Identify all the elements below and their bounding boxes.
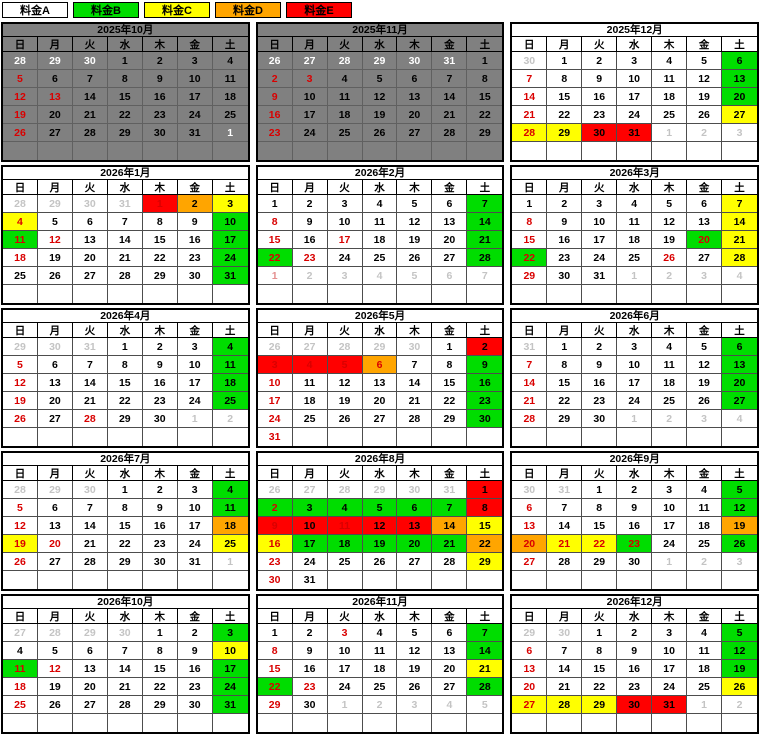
- day-cell: 31: [73, 338, 108, 356]
- day-cell: 6: [432, 624, 467, 642]
- day-cell: 27: [397, 553, 432, 571]
- day-cell: 1: [582, 624, 617, 642]
- day-cell: 17: [328, 660, 363, 678]
- day-cell: 24: [293, 124, 328, 142]
- weekday-header: 火: [328, 180, 363, 195]
- weekday-header-row: 日月火水木金土: [512, 609, 757, 624]
- day-cell: 26: [258, 52, 293, 70]
- weekday-header: 土: [213, 323, 248, 338]
- weekday-header: 木: [397, 323, 432, 338]
- day-cell: 1: [143, 624, 178, 642]
- day-cell: 24: [652, 678, 687, 696]
- day-cell: 2: [363, 696, 398, 714]
- day-cell: 23: [143, 535, 178, 553]
- weekday-header: 土: [213, 466, 248, 481]
- week-row: [258, 142, 503, 160]
- day-cell: [547, 285, 582, 303]
- week-row: [3, 571, 248, 589]
- day-cell: 31: [213, 696, 248, 714]
- day-cell: 15: [432, 374, 467, 392]
- day-cell: 3: [652, 624, 687, 642]
- day-cell: 29: [143, 696, 178, 714]
- weekday-header-row: 日月火水木金土: [258, 180, 503, 195]
- day-cell: [722, 571, 757, 589]
- day-cell: 2: [687, 124, 722, 142]
- day-cell: 15: [258, 231, 293, 249]
- day-cell: 2: [687, 553, 722, 571]
- day-cell: 7: [73, 70, 108, 88]
- day-cell: 27: [73, 267, 108, 285]
- day-cell: 30: [143, 410, 178, 428]
- weekday-header: 月: [293, 323, 328, 338]
- day-cell: 4: [722, 267, 757, 285]
- day-cell: [108, 142, 143, 160]
- day-cell: 5: [363, 499, 398, 517]
- day-cell: 12: [38, 231, 73, 249]
- day-cell: [582, 714, 617, 732]
- day-cell: [432, 714, 467, 732]
- day-cell: 21: [73, 535, 108, 553]
- week-row: 24252627282930: [258, 410, 503, 428]
- day-cell: 23: [617, 535, 652, 553]
- day-cell: [38, 714, 73, 732]
- weekday-header: 金: [178, 609, 213, 624]
- day-cell: 28: [73, 553, 108, 571]
- day-cell: 21: [467, 231, 502, 249]
- day-cell: 22: [108, 535, 143, 553]
- day-cell: [328, 571, 363, 589]
- day-cell: 16: [467, 374, 502, 392]
- day-cell: 5: [722, 624, 757, 642]
- day-cell: 30: [582, 410, 617, 428]
- day-cell: [213, 714, 248, 732]
- day-cell: [617, 285, 652, 303]
- weekday-header-row: 日月火水木金土: [3, 609, 248, 624]
- day-cell: 16: [143, 374, 178, 392]
- day-cell: 31: [178, 124, 213, 142]
- day-cell: 16: [617, 660, 652, 678]
- day-cell: 3: [293, 70, 328, 88]
- day-cell: 18: [213, 374, 248, 392]
- day-cell: [108, 714, 143, 732]
- day-cell: 12: [363, 88, 398, 106]
- week-row: 16171819202122: [258, 535, 503, 553]
- day-cell: 1: [178, 410, 213, 428]
- day-cell: 20: [73, 249, 108, 267]
- week-row: [512, 142, 757, 160]
- day-cell: 26: [652, 249, 687, 267]
- day-cell: 26: [397, 678, 432, 696]
- day-cell: 27: [397, 124, 432, 142]
- day-cell: 22: [108, 392, 143, 410]
- weekday-header: 土: [722, 180, 757, 195]
- month-block-2026年6月: 2026年6月日月火水木金土31123456789101112131415161…: [510, 308, 759, 448]
- day-cell: 31: [582, 267, 617, 285]
- month-block-2025年11月: 2025年11月日月火水木金土2627282930311234567891011…: [256, 22, 505, 162]
- day-cell: 14: [467, 213, 502, 231]
- day-cell: 9: [178, 642, 213, 660]
- day-cell: 15: [582, 660, 617, 678]
- weekday-header: 水: [108, 323, 143, 338]
- day-cell: 29: [363, 52, 398, 70]
- day-cell: 6: [38, 70, 73, 88]
- week-row: 15161718192021: [512, 231, 757, 249]
- weekday-header: 火: [73, 323, 108, 338]
- weekday-header-row: 日月火水木金土: [3, 180, 248, 195]
- day-cell: 24: [178, 106, 213, 124]
- weekday-header: 水: [363, 180, 398, 195]
- day-cell: [108, 285, 143, 303]
- day-cell: 9: [582, 70, 617, 88]
- day-cell: 29: [108, 410, 143, 428]
- day-cell: 22: [108, 106, 143, 124]
- day-cell: [512, 142, 547, 160]
- week-row: 13141516171819: [512, 660, 757, 678]
- weekday-header: 月: [38, 180, 73, 195]
- day-cell: 14: [73, 374, 108, 392]
- day-cell: 19: [397, 231, 432, 249]
- day-cell: 27: [722, 392, 757, 410]
- day-cell: 18: [652, 88, 687, 106]
- day-cell: 30: [143, 124, 178, 142]
- day-cell: 6: [722, 52, 757, 70]
- day-cell: 2: [293, 195, 328, 213]
- day-cell: 24: [178, 535, 213, 553]
- day-cell: 13: [363, 374, 398, 392]
- day-cell: 14: [547, 517, 582, 535]
- day-cell: 10: [293, 88, 328, 106]
- day-cell: [143, 428, 178, 446]
- day-cell: 17: [178, 374, 213, 392]
- day-cell: 10: [617, 356, 652, 374]
- day-cell: 10: [178, 499, 213, 517]
- day-cell: 29: [512, 267, 547, 285]
- day-cell: [178, 142, 213, 160]
- day-cell: [258, 142, 293, 160]
- weekday-header: 水: [108, 180, 143, 195]
- day-cell: 4: [213, 52, 248, 70]
- day-cell: 4: [652, 52, 687, 70]
- weekday-header: 火: [582, 466, 617, 481]
- month-title: 2026年1月: [3, 167, 248, 180]
- day-cell: 9: [178, 213, 213, 231]
- day-cell: 26: [397, 249, 432, 267]
- weekday-header: 水: [363, 466, 398, 481]
- day-cell: 2: [293, 267, 328, 285]
- day-cell: [73, 714, 108, 732]
- day-cell: 3: [582, 195, 617, 213]
- day-cell: 3: [397, 696, 432, 714]
- weekday-header: 日: [258, 466, 293, 481]
- week-row: 9101112131415: [258, 88, 503, 106]
- day-cell: 11: [328, 88, 363, 106]
- day-cell: 22: [143, 249, 178, 267]
- day-cell: 20: [397, 106, 432, 124]
- day-cell: 19: [363, 106, 398, 124]
- day-cell: 17: [617, 88, 652, 106]
- day-cell: 6: [38, 499, 73, 517]
- week-row: 22232425262728: [258, 249, 503, 267]
- day-cell: 19: [3, 535, 38, 553]
- day-cell: 21: [108, 249, 143, 267]
- weekday-header: 土: [213, 609, 248, 624]
- day-cell: 18: [3, 249, 38, 267]
- week-row: 2345678: [258, 70, 503, 88]
- week-row: 2829301234: [3, 481, 248, 499]
- weekday-header: 土: [722, 323, 757, 338]
- day-cell: 9: [293, 642, 328, 660]
- day-cell: 30: [73, 195, 108, 213]
- day-cell: 24: [328, 678, 363, 696]
- day-cell: 23: [258, 553, 293, 571]
- day-cell: 21: [722, 231, 757, 249]
- week-row: 21222324252627: [512, 106, 757, 124]
- day-cell: 23: [258, 124, 293, 142]
- day-cell: 14: [108, 231, 143, 249]
- day-cell: 28: [38, 624, 73, 642]
- day-cell: 30: [293, 696, 328, 714]
- week-row: [512, 714, 757, 732]
- day-cell: 11: [213, 499, 248, 517]
- month-block-2025年12月: 2025年12月日月火水木金土3012345678910111213141516…: [510, 22, 759, 162]
- day-cell: 13: [73, 231, 108, 249]
- day-cell: 20: [687, 231, 722, 249]
- month-title: 2026年9月: [512, 453, 757, 466]
- day-cell: 28: [397, 410, 432, 428]
- day-cell: 6: [38, 356, 73, 374]
- day-cell: 24: [617, 392, 652, 410]
- week-row: 27282930123: [3, 624, 248, 642]
- weekday-header-row: 日月火水木金土: [512, 466, 757, 481]
- weekday-header: 木: [652, 466, 687, 481]
- day-cell: 31: [293, 571, 328, 589]
- day-cell: [652, 142, 687, 160]
- week-row: [512, 428, 757, 446]
- week-row: 567891011: [3, 70, 248, 88]
- week-row: 11121314151617: [3, 660, 248, 678]
- day-cell: 19: [397, 660, 432, 678]
- day-cell: 1: [258, 195, 293, 213]
- day-cell: 25: [363, 249, 398, 267]
- day-cell: 5: [687, 52, 722, 70]
- day-cell: 4: [722, 410, 757, 428]
- day-cell: 6: [687, 195, 722, 213]
- day-cell: 16: [178, 660, 213, 678]
- day-cell: 24: [293, 553, 328, 571]
- day-cell: 21: [108, 678, 143, 696]
- day-cell: 23: [582, 106, 617, 124]
- day-cell: 27: [73, 696, 108, 714]
- day-cell: 26: [363, 553, 398, 571]
- day-cell: 23: [143, 106, 178, 124]
- day-cell: 30: [617, 696, 652, 714]
- legend-item-tier-A: 料金A: [2, 2, 68, 18]
- day-cell: 5: [3, 70, 38, 88]
- weekday-header: 金: [687, 323, 722, 338]
- day-cell: 26: [3, 553, 38, 571]
- day-cell: [467, 571, 502, 589]
- day-cell: 10: [582, 213, 617, 231]
- day-cell: 19: [722, 660, 757, 678]
- day-cell: 2: [467, 338, 502, 356]
- day-cell: 2: [617, 624, 652, 642]
- day-cell: 9: [293, 213, 328, 231]
- day-cell: 18: [687, 517, 722, 535]
- day-cell: 29: [582, 553, 617, 571]
- weekday-header: 火: [73, 609, 108, 624]
- day-cell: 15: [582, 517, 617, 535]
- day-cell: 7: [467, 195, 502, 213]
- day-cell: 27: [432, 678, 467, 696]
- day-cell: 31: [652, 696, 687, 714]
- day-cell: 8: [547, 356, 582, 374]
- day-cell: 31: [512, 338, 547, 356]
- day-cell: 3: [258, 356, 293, 374]
- day-cell: [397, 714, 432, 732]
- weekday-header: 木: [143, 37, 178, 52]
- day-cell: 13: [432, 642, 467, 660]
- day-cell: 9: [143, 499, 178, 517]
- weekday-header: 火: [582, 609, 617, 624]
- month-block-2026年4月: 2026年4月日月火水木金土29303112345678910111213141…: [1, 308, 250, 448]
- weekday-header-row: 日月火水木金土: [258, 609, 503, 624]
- weekday-header: 木: [397, 180, 432, 195]
- week-row: 14151617181920: [512, 88, 757, 106]
- day-cell: [108, 571, 143, 589]
- weekday-header: 水: [363, 37, 398, 52]
- day-cell: 4: [687, 624, 722, 642]
- day-cell: 2: [652, 410, 687, 428]
- weekday-header: 火: [328, 609, 363, 624]
- day-cell: 1: [617, 267, 652, 285]
- week-row: 891011121314: [512, 213, 757, 231]
- month-title: 2025年10月: [3, 24, 248, 37]
- day-cell: [38, 285, 73, 303]
- day-cell: 8: [582, 499, 617, 517]
- weekday-header: 火: [328, 37, 363, 52]
- day-cell: 15: [547, 88, 582, 106]
- day-cell: 21: [73, 106, 108, 124]
- day-cell: 28: [73, 124, 108, 142]
- day-cell: 16: [617, 517, 652, 535]
- day-cell: 21: [512, 106, 547, 124]
- weekday-header: 日: [3, 180, 38, 195]
- day-cell: 2: [178, 624, 213, 642]
- weekday-header: 月: [547, 37, 582, 52]
- day-cell: [328, 142, 363, 160]
- day-cell: 13: [687, 213, 722, 231]
- day-cell: 28: [328, 52, 363, 70]
- day-cell: 14: [397, 374, 432, 392]
- day-cell: 30: [512, 481, 547, 499]
- day-cell: 18: [328, 535, 363, 553]
- day-cell: 13: [38, 517, 73, 535]
- week-row: 19202122232425: [3, 106, 248, 124]
- day-cell: 8: [143, 213, 178, 231]
- weekday-header: 金: [687, 37, 722, 52]
- week-row: 6789101112: [512, 499, 757, 517]
- day-cell: 30: [178, 696, 213, 714]
- day-cell: 26: [363, 124, 398, 142]
- weekday-header: 月: [293, 609, 328, 624]
- weekday-header: 日: [258, 180, 293, 195]
- day-cell: 1: [512, 195, 547, 213]
- day-cell: 11: [652, 70, 687, 88]
- day-cell: 1: [213, 124, 248, 142]
- weekday-header: 月: [547, 323, 582, 338]
- month-block-2026年3月: 2026年3月日月火水木金土12345678910111213141516171…: [510, 165, 759, 305]
- day-cell: 13: [73, 660, 108, 678]
- day-cell: 11: [3, 660, 38, 678]
- day-cell: 29: [143, 267, 178, 285]
- weekday-header: 土: [467, 180, 502, 195]
- day-cell: [722, 285, 757, 303]
- day-cell: 12: [722, 499, 757, 517]
- day-cell: 29: [258, 696, 293, 714]
- day-cell: 13: [512, 660, 547, 678]
- day-cell: 3: [213, 195, 248, 213]
- day-cell: 4: [328, 70, 363, 88]
- day-cell: 6: [73, 213, 108, 231]
- weekday-header: 水: [363, 609, 398, 624]
- day-cell: 7: [467, 624, 502, 642]
- day-cell: 30: [38, 338, 73, 356]
- day-cell: [178, 428, 213, 446]
- day-cell: 7: [108, 213, 143, 231]
- day-cell: [213, 571, 248, 589]
- week-row: 2930311234: [512, 267, 757, 285]
- day-cell: 12: [687, 356, 722, 374]
- day-cell: 28: [467, 249, 502, 267]
- calendar-grid: 2025年10月日月火水木金土2829301234567891011121314…: [0, 18, 760, 734]
- day-cell: 10: [213, 642, 248, 660]
- day-cell: 3: [293, 499, 328, 517]
- week-row: [258, 285, 503, 303]
- day-cell: 24: [258, 410, 293, 428]
- day-cell: 22: [582, 678, 617, 696]
- week-row: 567891011: [3, 356, 248, 374]
- day-cell: 22: [467, 106, 502, 124]
- weekday-header: 日: [258, 37, 293, 52]
- weekday-header: 月: [38, 323, 73, 338]
- day-cell: 28: [3, 52, 38, 70]
- day-cell: 22: [258, 249, 293, 267]
- weekday-header: 金: [687, 180, 722, 195]
- day-cell: [652, 714, 687, 732]
- month-title: 2026年2月: [258, 167, 503, 180]
- day-cell: 3: [687, 410, 722, 428]
- day-cell: 29: [73, 624, 108, 642]
- week-row: 2345678: [258, 499, 503, 517]
- day-cell: 19: [38, 678, 73, 696]
- day-cell: 24: [213, 249, 248, 267]
- day-cell: 20: [73, 678, 108, 696]
- day-cell: 23: [178, 678, 213, 696]
- day-cell: 31: [258, 428, 293, 446]
- week-row: [3, 142, 248, 160]
- day-cell: 17: [178, 517, 213, 535]
- day-cell: [3, 571, 38, 589]
- week-row: 15161718192021: [258, 231, 503, 249]
- day-cell: 2: [547, 195, 582, 213]
- weekday-header: 水: [108, 466, 143, 481]
- day-cell: 10: [258, 374, 293, 392]
- day-cell: 14: [512, 374, 547, 392]
- day-cell: 12: [363, 517, 398, 535]
- day-cell: 28: [512, 410, 547, 428]
- weekday-header: 金: [432, 466, 467, 481]
- day-cell: [687, 428, 722, 446]
